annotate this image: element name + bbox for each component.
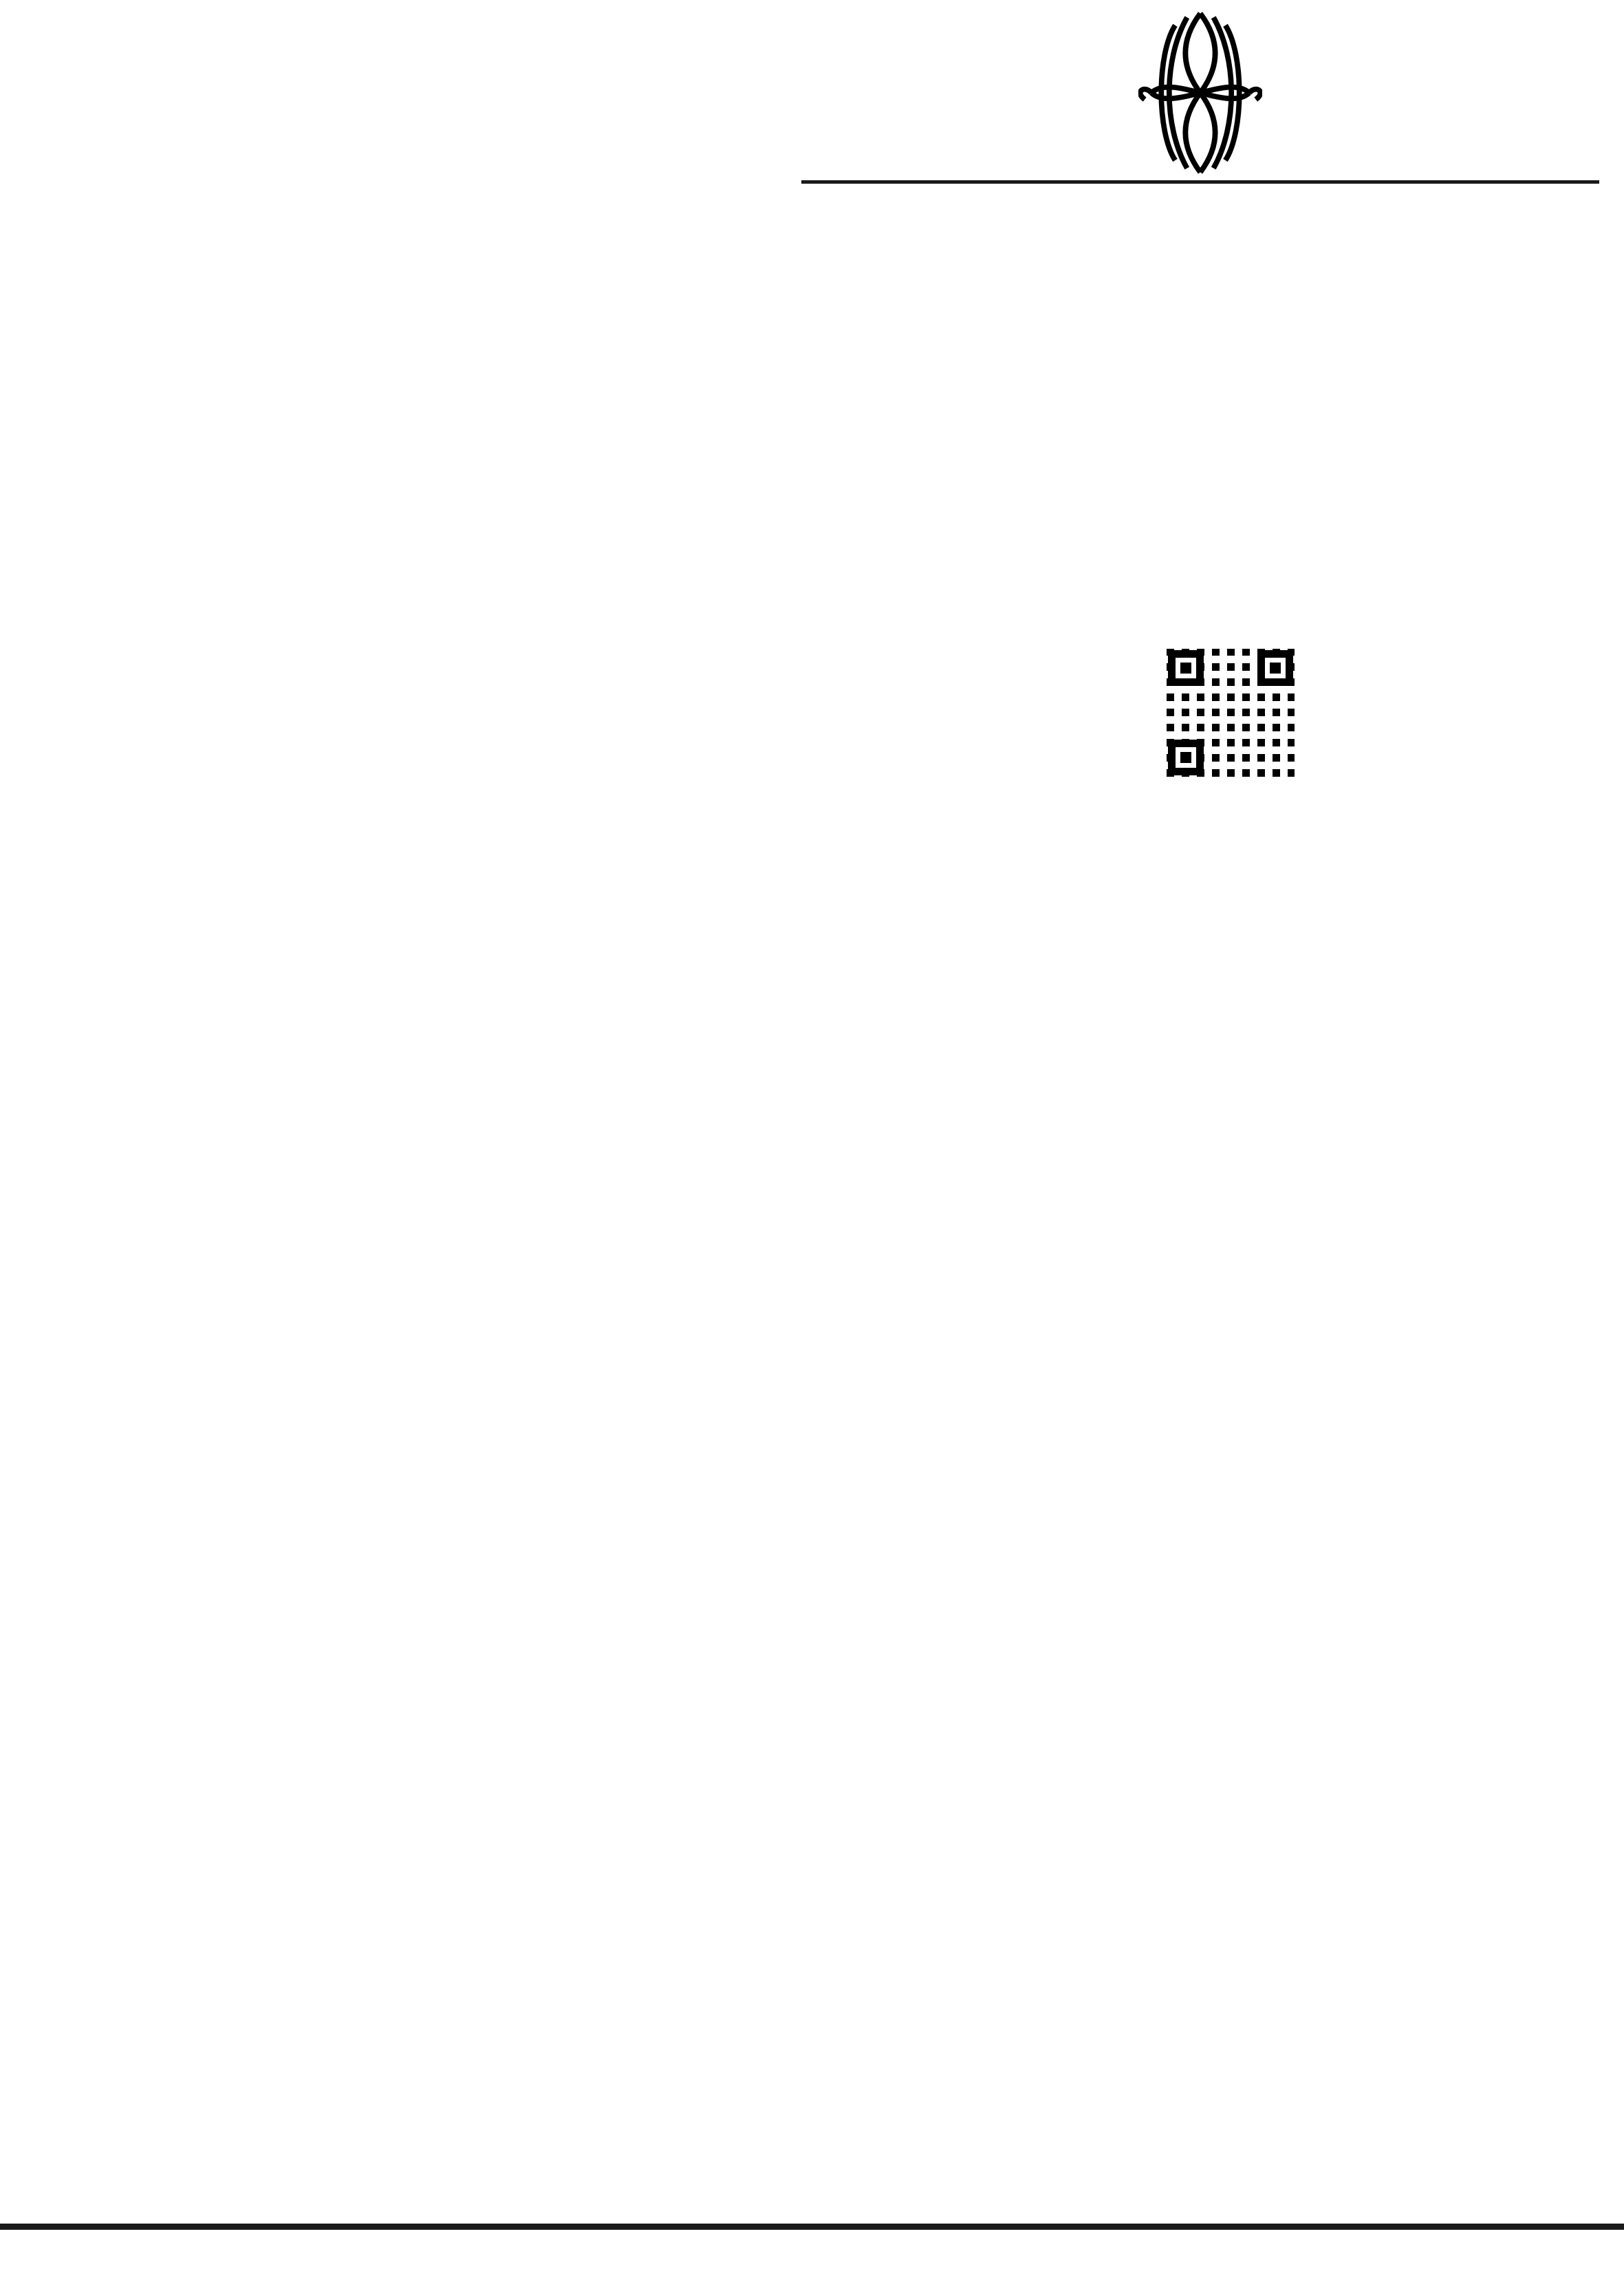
- map-route-overlay: [0, 0, 1624, 2280]
- cemetery-map-page: [0, 0, 1624, 2280]
